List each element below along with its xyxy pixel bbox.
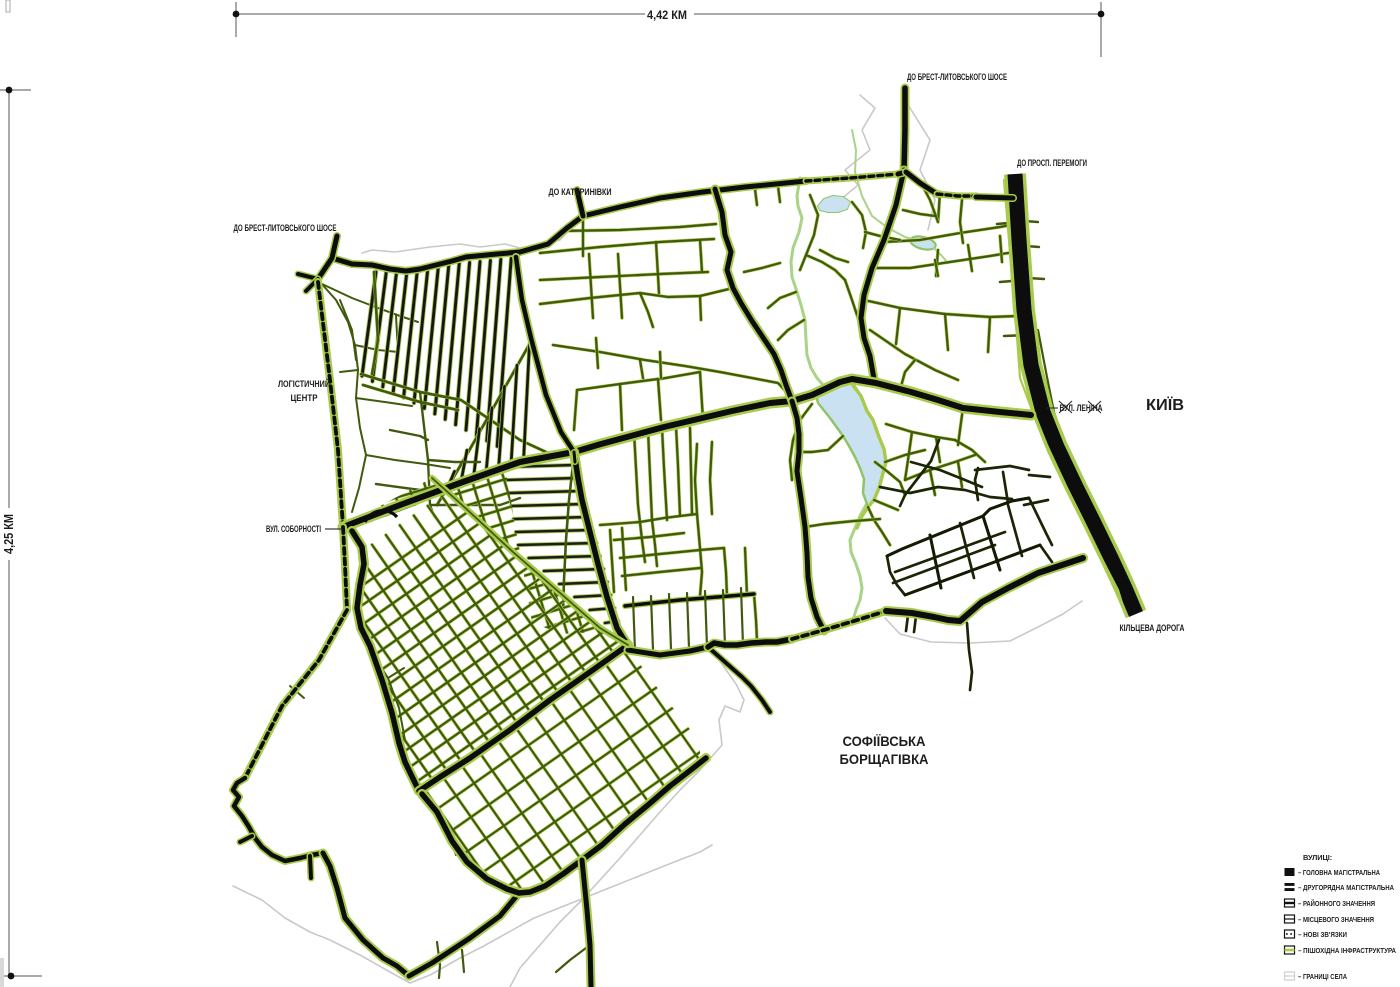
- svg-text:– ГРАНИЦІ СЕЛА: – ГРАНИЦІ СЕЛА: [1298, 972, 1347, 981]
- svg-text:БОРЩАГІВКА: БОРЩАГІВКА: [840, 752, 929, 767]
- svg-text:– МІСЦЕВОГО ЗНАЧЕННЯ: – МІСЦЕВОГО ЗНАЧЕННЯ: [1298, 915, 1374, 924]
- svg-text:КИЇВ: КИЇВ: [1146, 396, 1184, 414]
- svg-text:ДО БРЕСТ-ЛИТОВСЬКОГО ШОСЕ: ДО БРЕСТ-ЛИТОВСЬКОГО ШОСЕ: [907, 72, 1007, 83]
- svg-text:– РАЙОННОГО ЗНАЧЕННЯ: – РАЙОННОГО ЗНАЧЕННЯ: [1298, 899, 1375, 908]
- svg-text:ДО ПРОСП. ПЕРЕМОГИ: ДО ПРОСП. ПЕРЕМОГИ: [1017, 158, 1087, 169]
- svg-text:4,25 КМ: 4,25 КМ: [1, 514, 16, 554]
- svg-text:ВУЛ. СОБОРНОСТІ: ВУЛ. СОБОРНОСТІ: [266, 524, 321, 535]
- svg-text:ЦЕНТР: ЦЕНТР: [291, 393, 319, 404]
- svg-text:ВУЛИЦІ:: ВУЛИЦІ:: [1303, 853, 1332, 862]
- svg-text:– ПІШОХІДНА ІНФРАСТРУКТУРА: – ПІШОХІДНА ІНФРАСТРУКТУРА: [1298, 946, 1396, 955]
- svg-text:– ДРУГОРЯДНА МАГІСТРАЛЬНА: – ДРУГОРЯДНА МАГІСТРАЛЬНА: [1298, 883, 1394, 892]
- svg-text:– ГОЛОВНА МАГІСТРАЛЬНА: – ГОЛОВНА МАГІСТРАЛЬНА: [1298, 868, 1380, 877]
- svg-text:КІЛЬЦЕВА ДОРОГА: КІЛЬЦЕВА ДОРОГА: [1120, 623, 1185, 634]
- svg-text:ДО КАТЕРИНІВКИ: ДО КАТЕРИНІВКИ: [549, 187, 612, 198]
- svg-text:4,42 КМ: 4,42 КМ: [647, 8, 687, 22]
- svg-text:– НОВІ ЗВ'ЯЗКИ: – НОВІ ЗВ'ЯЗКИ: [1298, 930, 1347, 939]
- svg-text:ДО БРЕСТ-ЛИТОВСЬКОГО ШОСЕ: ДО БРЕСТ-ЛИТОВСЬКОГО ШОСЕ: [234, 223, 337, 234]
- svg-text:СОФІЇВСЬКА: СОФІЇВСЬКА: [843, 734, 926, 749]
- svg-text:ЛОГІСТИЧНИЙ: ЛОГІСТИЧНИЙ: [278, 378, 330, 390]
